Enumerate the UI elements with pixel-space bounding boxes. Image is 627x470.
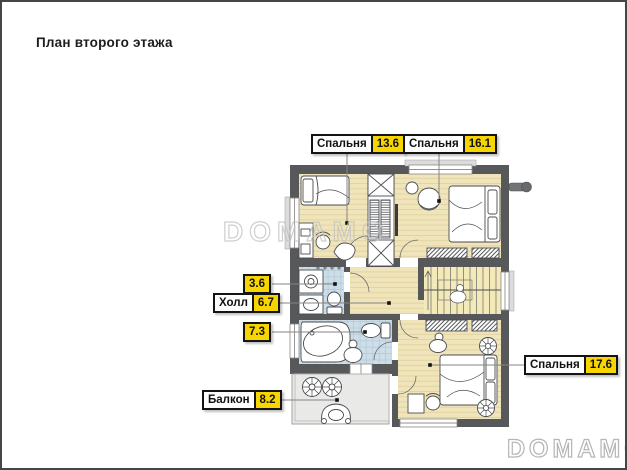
plant-icon	[478, 400, 495, 417]
person-icon	[349, 340, 357, 348]
chair-icon	[426, 396, 440, 410]
wall-top	[290, 165, 509, 174]
pillow-icon	[488, 190, 497, 214]
wall-stairs-left	[418, 267, 424, 300]
radiator-icon	[472, 248, 499, 258]
person-icon	[457, 285, 464, 292]
floor-plan-svg	[2, 2, 627, 470]
exterior-pipe	[509, 182, 532, 192]
hall-floor-strip	[418, 300, 424, 314]
room-label-bathroom: 7.3	[243, 322, 271, 342]
plant-icon	[323, 378, 342, 397]
chair-icon	[322, 404, 351, 424]
room-label-wc: 3.6	[243, 274, 271, 294]
radiator-icon	[427, 248, 467, 258]
room-label-hall: Холл 6.7	[213, 293, 280, 313]
pillow-icon	[488, 217, 497, 239]
window-sill	[285, 197, 290, 249]
desk-icon	[408, 394, 424, 413]
toilet-icon	[381, 323, 390, 338]
room-area: 6.7	[252, 295, 278, 311]
room-area: 8.2	[254, 392, 280, 408]
room-area: 3.6	[245, 276, 269, 292]
wall-mid-upper	[290, 258, 509, 267]
room-label-bedroom-2: Спальня 16.1	[403, 134, 497, 154]
wall-bathroom-bottom	[290, 364, 398, 374]
person-icon	[430, 340, 447, 353]
toilet-icon	[328, 292, 341, 306]
room-name: Балкон	[204, 392, 254, 408]
person-icon	[450, 291, 466, 303]
room-label-balcony: Балкон 8.2	[202, 390, 282, 410]
wardrobe-icon	[381, 200, 390, 238]
wall-bedroom-3-left	[392, 320, 398, 419]
floor-plan-page: План второго этажа	[0, 0, 627, 470]
room-label-bedroom-1: Спальня 13.6	[311, 134, 405, 154]
wall-mid-lower	[290, 314, 509, 320]
room-area: 7.3	[245, 324, 269, 340]
room-name: Спальня	[405, 136, 463, 152]
chair-icon	[316, 235, 330, 249]
closet-column	[368, 174, 398, 266]
tv-panel-icon	[395, 204, 398, 236]
room-area: 16.1	[463, 136, 495, 152]
room-area: 17.6	[584, 357, 616, 373]
hall-floor	[350, 267, 418, 314]
room-name: Спальня	[526, 357, 584, 373]
window-sill	[509, 271, 514, 311]
pillow-icon	[303, 179, 313, 202]
radiator-icon	[472, 320, 497, 331]
room-area: 13.6	[371, 136, 403, 152]
bathtub-icon	[301, 322, 350, 362]
room-name: Спальня	[313, 136, 371, 152]
room-label-bedroom-3: Спальня 17.6	[524, 355, 618, 375]
pillow-icon	[486, 358, 495, 380]
wardrobe-icon	[370, 200, 379, 238]
staircase	[424, 267, 501, 314]
side-table-icon	[406, 182, 418, 194]
room-name: Холл	[215, 295, 252, 311]
toilet-icon	[327, 307, 342, 314]
radiator-icon	[426, 320, 467, 331]
armchair-icon	[418, 188, 440, 210]
plant-icon	[303, 378, 322, 397]
person-icon	[344, 348, 362, 363]
plant-icon	[480, 338, 497, 355]
balcony-items	[292, 374, 389, 424]
